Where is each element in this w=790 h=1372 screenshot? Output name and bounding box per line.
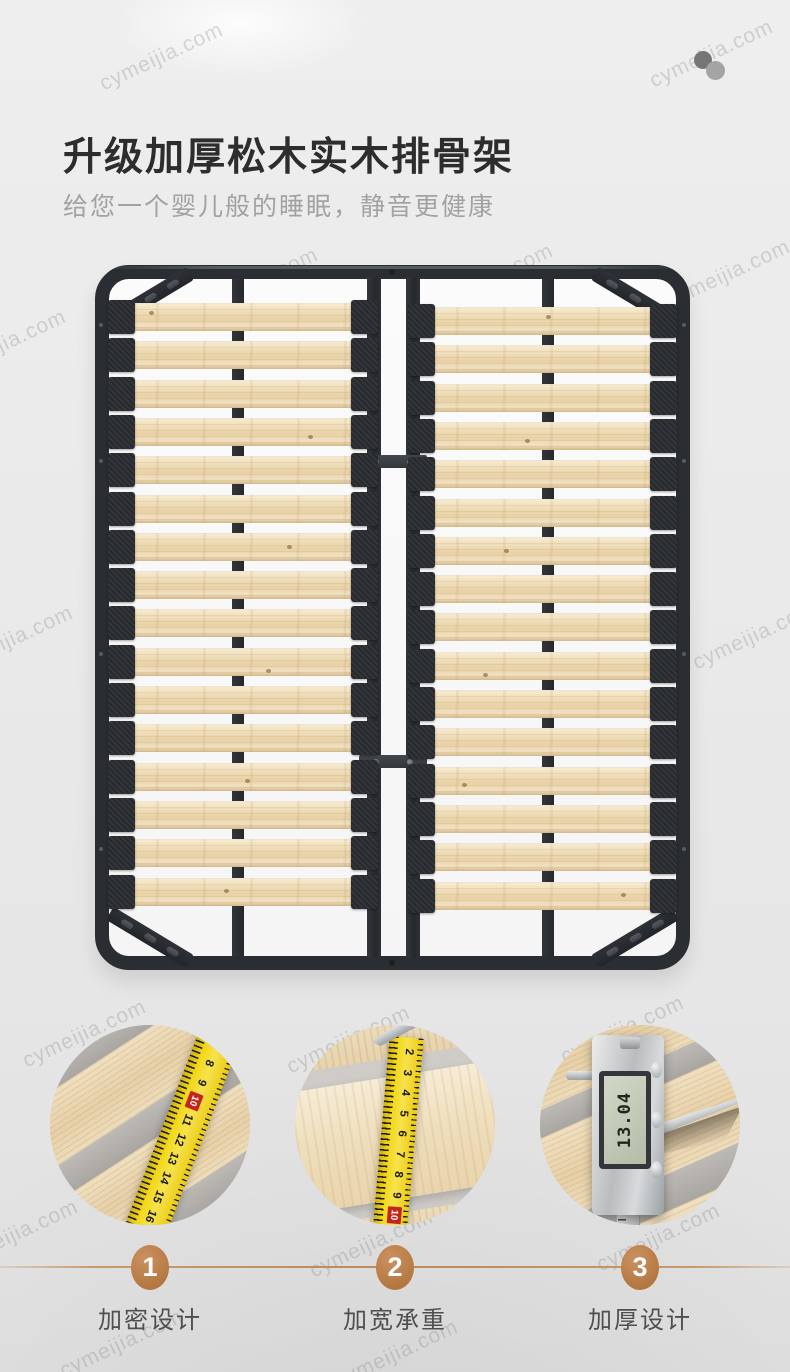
wood-slat <box>409 767 676 795</box>
watermark: cymeijia.com <box>689 597 790 675</box>
tape-number: 9 <box>191 1075 212 1088</box>
detail-photo-slat-thickness: 13.04 ⬢ <box>540 1025 740 1225</box>
slat-end-cap <box>108 492 135 526</box>
tape-number: 14 <box>153 1168 177 1187</box>
rail-rivet <box>99 847 103 851</box>
slat-end-cap <box>408 764 435 798</box>
slat-end-cap <box>351 415 378 449</box>
watermark: cymeijia.com <box>646 15 777 93</box>
caliper-thumb-knob <box>620 1037 640 1049</box>
tape-number: 11 <box>175 1110 199 1129</box>
rail-rivet <box>99 652 103 656</box>
tape-number: 3 <box>396 1068 417 1076</box>
slat-end-cap <box>351 645 378 679</box>
slat-end-cap <box>351 875 378 909</box>
caliper-zero-button <box>651 1061 662 1078</box>
tape-number: 4 <box>395 1089 416 1097</box>
slat-end-cap <box>108 798 135 832</box>
wood-slat <box>409 460 676 488</box>
feature-number: 2 <box>387 1252 402 1283</box>
wood-knot <box>308 435 313 439</box>
wood-slat <box>109 686 377 714</box>
tape-number: 12 <box>168 1129 192 1148</box>
tape-number: 5 <box>393 1109 414 1117</box>
bottom-rail-joint-screw <box>389 960 395 966</box>
background-glow <box>105 0 375 80</box>
wood-slat <box>109 878 377 906</box>
slat-end-cap <box>650 419 677 453</box>
slat-end-cap <box>108 606 135 640</box>
wood-slat <box>109 763 377 791</box>
tape-number: 8 <box>387 1170 408 1178</box>
brace-hole <box>120 918 134 930</box>
wood-slat <box>109 648 377 676</box>
slat-end-cap <box>351 836 378 870</box>
detail-photo-slat-spacing: 67891011121314151617 <box>50 1025 250 1225</box>
wood-slat <box>409 843 676 871</box>
slat-end-cap <box>650 610 677 644</box>
tape-number: 7 <box>205 1037 226 1050</box>
brace-hole <box>143 292 157 304</box>
slat-end-cap <box>108 568 135 602</box>
slat-end-cap <box>408 610 435 644</box>
slat-end-cap <box>650 381 677 415</box>
wood-slat <box>409 652 676 680</box>
wood-slat <box>409 805 676 833</box>
slat-end-cap <box>108 453 135 487</box>
wood-slat <box>409 728 676 756</box>
wood-slat <box>409 307 676 335</box>
wood-slat <box>109 571 377 599</box>
wood-slat <box>109 418 377 446</box>
wood-knot <box>245 779 250 783</box>
rail-rivet <box>682 847 686 851</box>
brace-hole <box>166 945 180 957</box>
wood-slat <box>409 499 676 527</box>
wood-slat <box>409 384 676 412</box>
slat-end-cap <box>351 606 378 640</box>
caliper-unit-button <box>651 1161 662 1178</box>
wood-knot <box>546 315 551 319</box>
feature-label-width: 加宽承重 <box>285 1300 505 1335</box>
slat-end-cap <box>408 419 435 453</box>
wood-slat <box>109 801 377 829</box>
slat-end-cap <box>351 338 378 372</box>
slat-end-cap <box>408 840 435 874</box>
feature-label-density: 加密设计 <box>40 1300 260 1335</box>
slat-end-cap <box>650 457 677 491</box>
wood-slat <box>409 422 676 450</box>
tape-number: 8 <box>198 1056 219 1069</box>
page-subtitle: 给您一个婴儿般的睡眠，静音更健康 <box>63 187 495 223</box>
wood-knot <box>149 311 154 315</box>
tape-number: 16 <box>138 1206 162 1225</box>
slat-end-cap <box>408 572 435 606</box>
tape-decimeter-marker: 10 <box>185 1091 204 1111</box>
slat-end-cap <box>108 683 135 717</box>
wood-knot <box>525 439 530 443</box>
wood-knot <box>504 549 509 553</box>
slat-end-cap <box>650 304 677 338</box>
slat-end-cap <box>408 496 435 530</box>
slat-end-cap <box>351 453 378 487</box>
slat-end-cap <box>650 534 677 568</box>
slat-end-cap <box>351 300 378 334</box>
caliper-lock-screw <box>566 1071 594 1080</box>
wood-slat <box>109 495 377 523</box>
slat-end-cap <box>351 530 378 564</box>
brace-hole <box>605 278 619 290</box>
wood-knot <box>462 783 467 787</box>
feature-badge-3: 3 <box>621 1245 659 1290</box>
wood-knot <box>266 669 271 673</box>
feature-badge-1: 1 <box>131 1245 169 1290</box>
slat-end-cap <box>108 875 135 909</box>
bed-frame-photo <box>95 265 690 970</box>
brace-hole <box>651 918 665 930</box>
tape-number: 6 <box>213 1025 234 1031</box>
wood-slat <box>409 613 676 641</box>
top-rail-joint-screw <box>389 269 395 275</box>
slat-end-cap <box>108 300 135 334</box>
caliper-reading: 13.04 <box>615 1092 635 1148</box>
brace-hole <box>605 945 619 957</box>
caliper-lcd: 13.04 <box>604 1076 646 1164</box>
wood-slat <box>109 303 377 331</box>
wood-slat <box>409 345 676 373</box>
slat-end-cap <box>650 764 677 798</box>
slat-end-cap <box>351 568 378 602</box>
page-title: 升级加厚松木实木排骨架 <box>63 126 514 182</box>
slat-end-cap <box>650 725 677 759</box>
rail-rivet <box>682 652 686 656</box>
slat-end-cap <box>108 415 135 449</box>
slat-end-cap <box>351 721 378 755</box>
wood-slat <box>409 882 676 910</box>
brace-hole <box>628 292 642 304</box>
slat-end-cap <box>650 572 677 606</box>
wood-slat <box>109 609 377 637</box>
tape-number: 9 <box>386 1191 407 1199</box>
slat-end-cap <box>351 492 378 526</box>
slat-end-cap <box>351 798 378 832</box>
slat-end-cap <box>650 649 677 683</box>
slat-end-cap <box>650 879 677 913</box>
caliper-lcd-frame: 13.04 <box>599 1071 651 1169</box>
watermark: cymeijia.com <box>0 305 70 383</box>
slat-end-cap <box>108 377 135 411</box>
wood-slat <box>109 456 377 484</box>
corner-brace-bottom-left <box>106 907 194 968</box>
watermark: cymeijia.com <box>0 601 77 679</box>
slat-end-cap <box>351 760 378 794</box>
feature-number: 1 <box>142 1252 157 1283</box>
wood-slat <box>109 341 377 369</box>
tape-number: 2 <box>398 1048 419 1056</box>
wood-slat <box>409 690 676 718</box>
slat-end-cap <box>650 687 677 721</box>
slat-end-cap <box>108 645 135 679</box>
tape-number: 13 <box>160 1148 184 1167</box>
rail-rivet <box>99 323 103 327</box>
wood-knot <box>483 673 488 677</box>
brace-hole <box>166 278 180 290</box>
tape-number: 7 <box>389 1150 410 1158</box>
slat-end-cap <box>408 457 435 491</box>
slat-end-cap <box>408 649 435 683</box>
wood-slat <box>409 537 676 565</box>
rail-rivet <box>682 459 686 463</box>
slat-end-cap <box>351 377 378 411</box>
caliper-onoff-button <box>651 1111 662 1128</box>
brace-hole <box>143 932 157 944</box>
slat-end-cap <box>408 802 435 836</box>
slat-end-cap <box>408 381 435 415</box>
slat-end-cap <box>650 840 677 874</box>
tape-number: 6 <box>391 1129 412 1137</box>
tape-number: 15 <box>146 1187 170 1206</box>
slat-end-cap <box>408 304 435 338</box>
wood-slat <box>109 839 377 867</box>
slat-end-cap <box>650 342 677 376</box>
tape-numbers: 234567891011 <box>383 1041 417 1225</box>
wood-knot <box>287 545 292 549</box>
decor-dot-light <box>706 61 725 80</box>
wood-slat <box>109 724 377 752</box>
slat-end-cap <box>408 342 435 376</box>
tape-decimeter-marker: 10 <box>387 1206 402 1224</box>
wood-knot <box>224 889 229 893</box>
digital-caliper: 13.04 <box>592 1035 664 1215</box>
wood-slat <box>409 575 676 603</box>
corner-brace-bottom-right <box>591 907 679 968</box>
detail-photo-slat-width: 234567891011 <box>295 1025 495 1225</box>
wood-knot <box>621 893 626 897</box>
slat-end-cap <box>408 879 435 913</box>
slat-end-cap <box>650 496 677 530</box>
promo-page: cymeijia.comcymeijia.comcymeijia.comcyme… <box>0 0 790 1372</box>
slat-end-cap <box>351 683 378 717</box>
brace-hole <box>628 932 642 944</box>
slat-end-cap <box>108 836 135 870</box>
slat-end-cap <box>408 725 435 759</box>
feature-label-thickness: 加厚设计 <box>530 1300 750 1335</box>
wood-slat <box>109 380 377 408</box>
slat-end-cap <box>650 802 677 836</box>
slat-end-cap <box>108 530 135 564</box>
slat-end-cap <box>108 338 135 372</box>
wood-slat <box>109 533 377 561</box>
feature-number: 3 <box>632 1252 647 1283</box>
slat-end-cap <box>108 760 135 794</box>
slat-end-cap <box>408 534 435 568</box>
slat-end-cap <box>408 687 435 721</box>
slat-end-cap <box>108 721 135 755</box>
feature-badge-2: 2 <box>376 1245 414 1290</box>
rail-rivet <box>682 323 686 327</box>
rail-rivet <box>99 459 103 463</box>
